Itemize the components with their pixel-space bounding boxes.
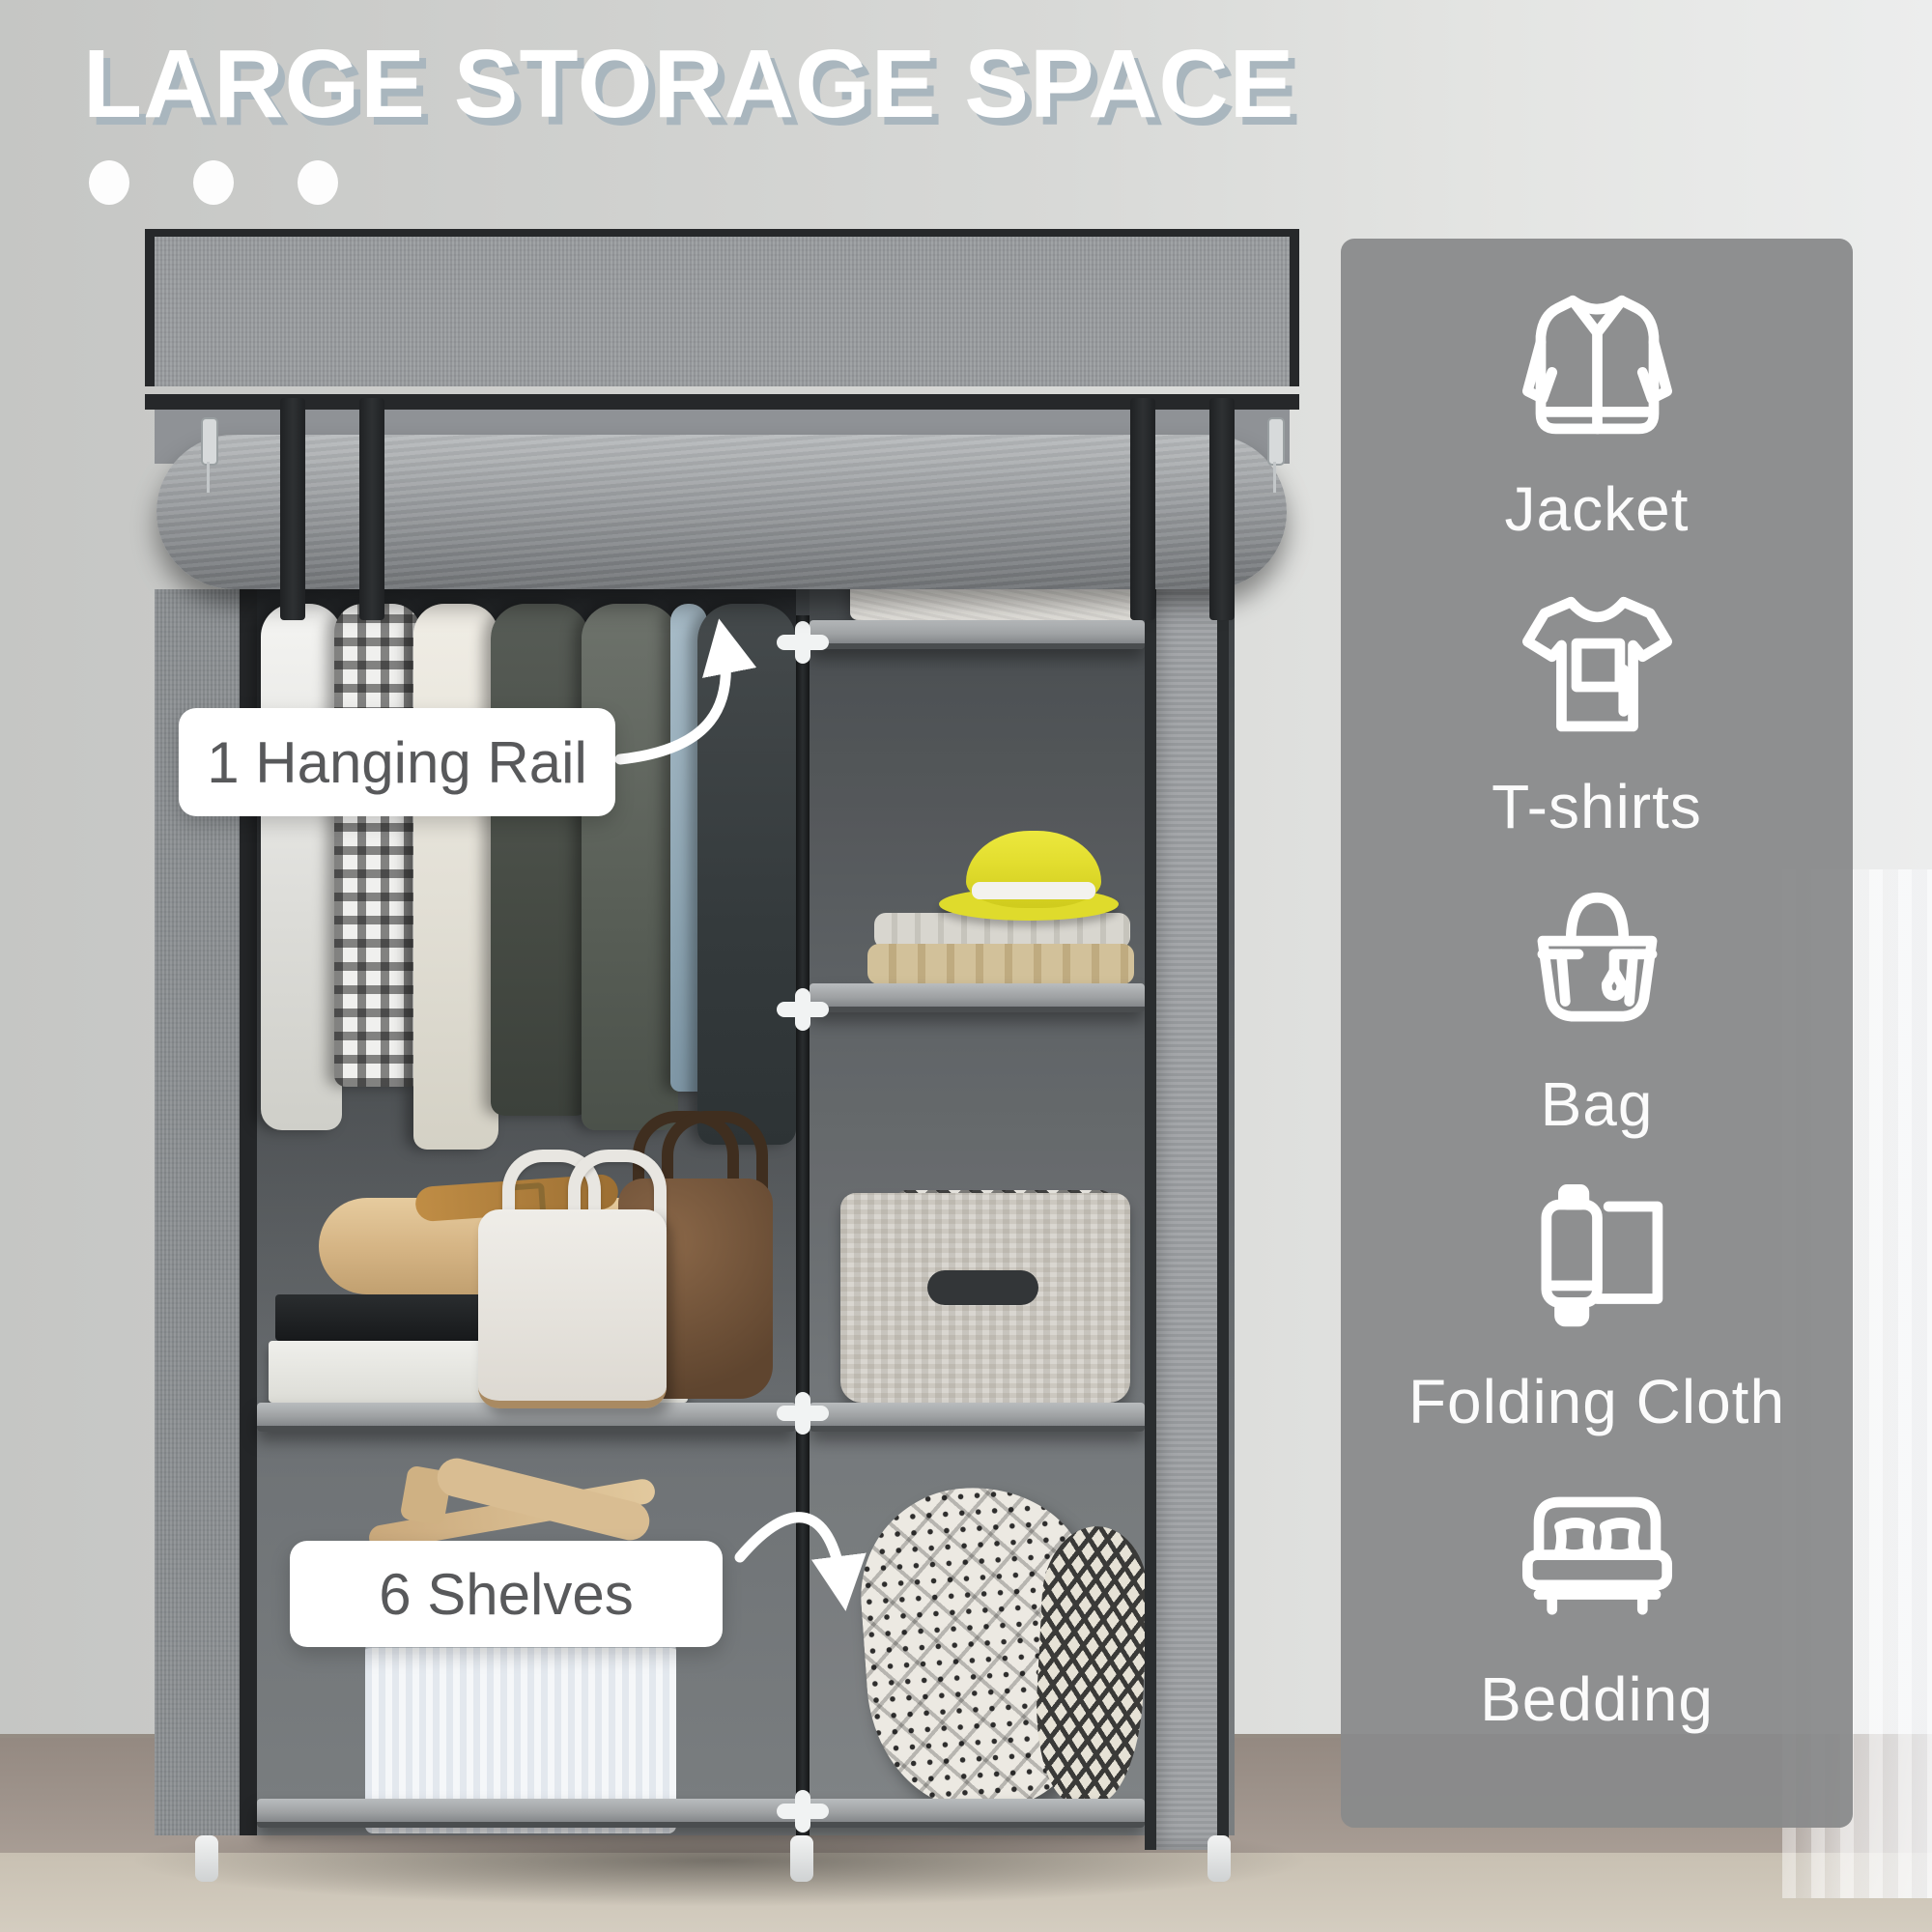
feature-label: Jacket xyxy=(1505,469,1690,550)
bag-icon xyxy=(1503,869,1691,1058)
feature-item-folding-cloth: Folding Cloth xyxy=(1408,1145,1785,1442)
zipper-pull xyxy=(201,417,218,466)
hanging-rail-callout: 1 Hanging Rail xyxy=(179,708,615,816)
feature-item-jacket: Jacket xyxy=(1503,252,1691,550)
zipper-pull xyxy=(1267,417,1285,466)
center-pole xyxy=(796,615,810,1835)
feature-label: Folding Cloth xyxy=(1408,1361,1785,1442)
garment-charcoal-jacket xyxy=(697,604,796,1145)
hanging-rail-label: 1 Hanging Rail xyxy=(207,729,587,796)
pole-connector xyxy=(777,635,829,650)
garment-dark-suit xyxy=(491,604,589,1116)
garment-cream-shirt xyxy=(413,604,498,1150)
feature-panel: Jacket T-shirts xyxy=(1341,239,1853,1828)
shelves-label: 6 Shelves xyxy=(379,1561,634,1628)
pole-connector xyxy=(777,1002,829,1017)
shelf xyxy=(810,983,1145,1012)
wardrobe-foot xyxy=(1207,1835,1231,1882)
product-showcase: LARGE STORAGE SPACE xyxy=(0,0,1932,1932)
accent-dot xyxy=(193,160,234,205)
pole-connector xyxy=(777,1804,829,1819)
feature-item-bag: Bag xyxy=(1503,847,1691,1145)
accent-dots xyxy=(89,160,338,205)
pole-connector xyxy=(777,1406,829,1421)
feature-item-tshirts: T-shirts xyxy=(1492,550,1702,847)
shelves-callout: 6 Shelves xyxy=(290,1541,723,1647)
door-strap xyxy=(1130,398,1155,620)
wardrobe-frame-band xyxy=(145,394,1299,410)
accent-dot xyxy=(89,160,129,205)
door-strap xyxy=(1209,398,1235,620)
feature-item-bedding: Bedding xyxy=(1480,1442,1714,1740)
feature-label: Bag xyxy=(1541,1064,1654,1145)
yellow-hat-band xyxy=(972,882,1095,899)
rolled-up-door xyxy=(156,435,1287,589)
bedding-icon xyxy=(1503,1464,1691,1653)
white-leather-bag xyxy=(478,1209,667,1408)
wardrobe-right-door-panel xyxy=(1145,589,1229,1850)
jacket-icon xyxy=(1503,274,1691,463)
tshirt-icon xyxy=(1503,572,1691,760)
wardrobe-top-valance xyxy=(145,229,1299,386)
page-title: LARGE STORAGE SPACE xyxy=(83,29,1294,140)
wardrobe-foot xyxy=(790,1835,813,1882)
bottom-shelf xyxy=(257,1799,1145,1828)
basket-handle-hole xyxy=(927,1270,1038,1305)
garment-gray-suit xyxy=(582,604,678,1130)
feature-label: Bedding xyxy=(1480,1659,1714,1740)
accent-dot xyxy=(298,160,338,205)
door-strap xyxy=(280,398,305,620)
shelf xyxy=(810,1403,1145,1432)
feature-label: T-shirts xyxy=(1492,766,1702,847)
wardrobe-foot xyxy=(195,1835,218,1882)
garment-gingham-shirt xyxy=(334,604,421,1087)
folded-blanket xyxy=(867,944,1134,984)
folding-cloth-icon xyxy=(1503,1167,1691,1355)
garment-white-shirt xyxy=(261,604,342,1130)
shelf xyxy=(810,620,1145,649)
door-strap xyxy=(359,398,384,620)
